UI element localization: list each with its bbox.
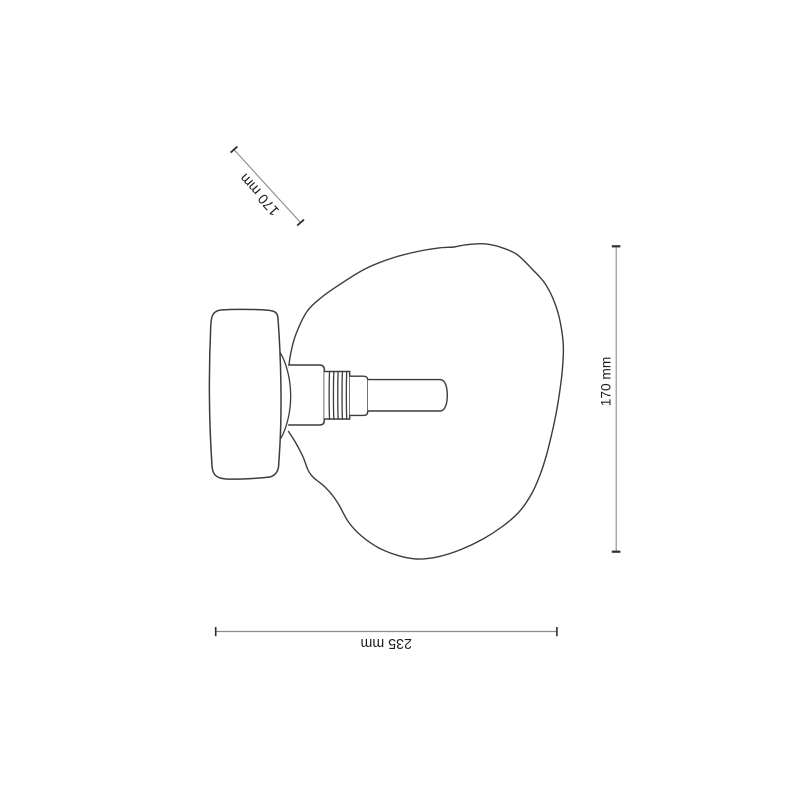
svg-text:170 mm: 170 mm — [599, 357, 614, 407]
svg-text:235 mm: 235 mm — [360, 635, 412, 651]
